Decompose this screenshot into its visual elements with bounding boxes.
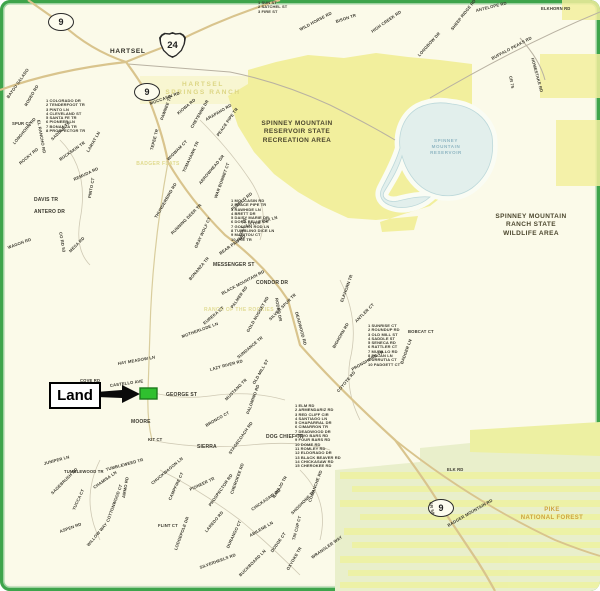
shield-number: 9 xyxy=(144,87,149,97)
national-forest-label: PIKE NATIONAL FOREST xyxy=(510,507,594,523)
street-label: MOORE xyxy=(131,420,151,425)
street-label: DOG CHIEF TR xyxy=(266,435,304,440)
street-label: SIERRA xyxy=(197,445,217,450)
wildlife-area-label: SPINNEY MOUNTAIN RANCH STATE WILDLIFE AR… xyxy=(490,213,572,238)
street-label: GEORGE ST xyxy=(166,393,197,398)
land-label-text: Land xyxy=(57,387,93,404)
reservoir-line3: RESERVOIR xyxy=(416,150,476,156)
street-label: BOBCAT CT xyxy=(408,330,434,334)
street-list: 1 SUNRISE CT2 ROUNDUP RD3 OLD MILL ST4 S… xyxy=(368,324,400,367)
street-label: KIT CT xyxy=(148,438,162,442)
recreation-area-line1: SPINNEY MOUNTAIN xyxy=(256,120,338,128)
street-label: ELKHORN RD xyxy=(541,7,570,11)
street-list-line: 8 PROSPECTOR TR xyxy=(46,129,85,133)
forest-streaks xyxy=(340,472,600,588)
shield-number: 24 xyxy=(167,40,178,51)
land-arrow xyxy=(96,385,140,403)
state-land-patch-right1 xyxy=(540,54,600,98)
shield-number: 9 xyxy=(438,503,443,513)
reservoir-label: SPINNEY MOUNTAIN RESERVOIR xyxy=(416,138,476,156)
wildlife-area-line1: SPINNEY MOUNTAIN xyxy=(490,213,572,221)
recreation-area-line3: RECREATION AREA xyxy=(256,137,338,145)
highway-9-shield: 9 xyxy=(48,13,74,31)
street-label: ANTERO DR xyxy=(34,210,65,215)
national-forest-line1: PIKE xyxy=(510,507,594,515)
recreation-area-label: SPINNEY MOUNTAIN RESERVOIR STATE RECREAT… xyxy=(256,120,338,145)
street-label: ELK RD xyxy=(447,468,464,472)
street-list-line: 10 PADGETT CT xyxy=(368,363,400,367)
state-land-patch-right2 xyxy=(556,120,600,186)
map-frame: HARTSEL SPINNEY MOUNTAIN RESERVOIR STATE… xyxy=(0,0,600,591)
recreation-area-line2: RESERVOIR STATE xyxy=(256,128,338,136)
street-label: CR 75 xyxy=(508,76,514,89)
street-label: CONDOR DR xyxy=(256,281,288,286)
street-list-line: 15 CHEROKEE RD xyxy=(295,464,341,468)
street-list-line: 3 FIRE ST xyxy=(258,10,287,14)
town-label-hartsel: HARTSEL xyxy=(110,48,146,55)
wildlife-area-line2: RANCH STATE xyxy=(490,221,572,229)
shield-number: 9 xyxy=(58,17,63,27)
street-label: FLINT CT xyxy=(158,524,178,528)
badger-flats-label: BADGER FLATS xyxy=(126,161,190,168)
land-label-box: Land xyxy=(49,382,101,409)
street-label: MESSENGER ST xyxy=(213,263,255,268)
street-label: DAVIS TR xyxy=(34,198,58,203)
land-parcel xyxy=(140,388,157,399)
us-24 xyxy=(126,0,280,62)
wildlife-area-line3: WILDLIFE AREA xyxy=(490,230,572,238)
street-list: 1 SUN ST2 SATCHEL ST3 FIRE ST xyxy=(258,1,287,14)
national-forest-line2: NATIONAL FOREST xyxy=(510,515,594,523)
forest-streak-wedge xyxy=(470,422,600,456)
